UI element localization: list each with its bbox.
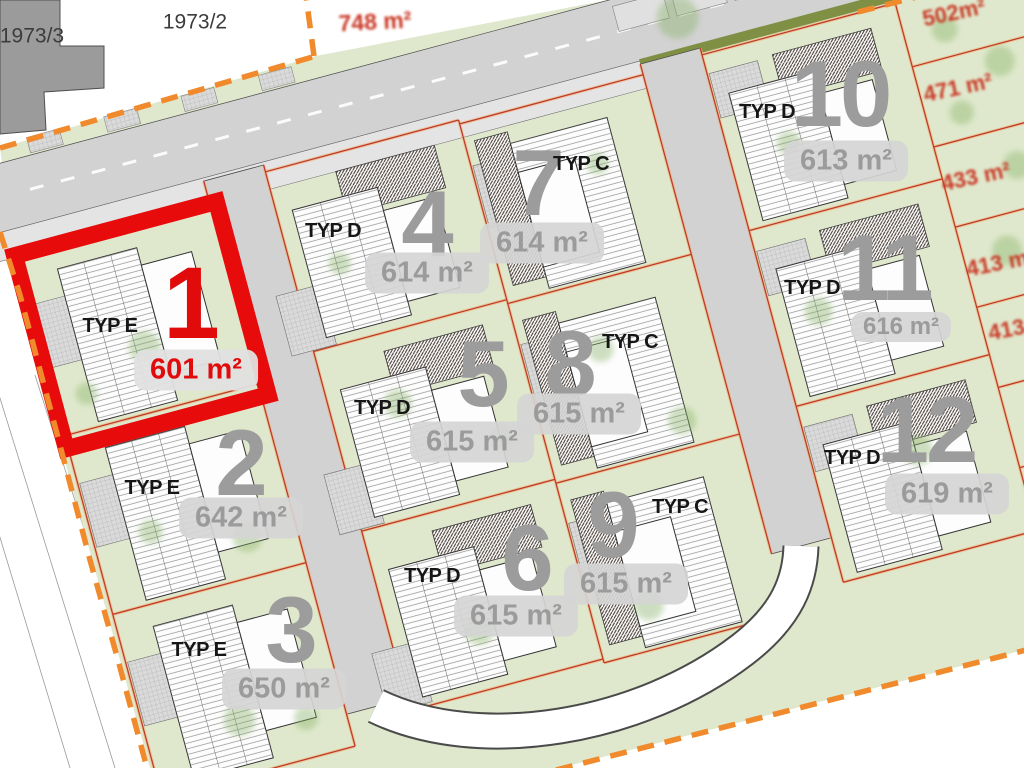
plot-3-area-badge: 650 m² <box>222 669 346 710</box>
area-label-433: 433 m² <box>940 159 1013 195</box>
plot-5-type: TYP D <box>354 398 410 418</box>
plot-4-type: TYP D <box>305 221 361 241</box>
plot-8-type: TYP C <box>602 332 658 352</box>
plot-6-number: 6 <box>501 511 550 605</box>
plot-7-number: 7 <box>512 136 561 230</box>
plot-4-area-badge: 614 m² <box>365 253 489 294</box>
site-plan: 1973/3 1973/2 748 m² 502m² 471 m² 433 m²… <box>0 0 1024 768</box>
annotation-layer: 1973/3 1973/2 748 m² 502m² 471 m² 433 m²… <box>0 0 1024 768</box>
parcel-label-1973-2: 1973/2 <box>163 12 227 33</box>
plot-12-type: TYP D <box>824 448 880 468</box>
plot-11-area-badge: 616 m² <box>851 312 951 342</box>
plot-5-area-badge: 615 m² <box>410 422 534 463</box>
plot-9-area-badge: 615 m² <box>564 564 688 605</box>
plot-9-number: 9 <box>587 478 636 572</box>
plot-8-area-badge: 615 m² <box>517 394 641 435</box>
plot-1-type: TYP E <box>83 316 138 336</box>
area-label-471: 471 m² <box>922 70 995 106</box>
plot-1-area-badge: 601 m² <box>134 350 258 391</box>
plot-1-number: 1 <box>163 252 217 354</box>
area-label-413a: 413 m² <box>965 246 1024 281</box>
plot-10-area-badge: 613 m² <box>784 141 908 182</box>
plot-10-number: 10 <box>791 47 890 141</box>
plot-2-type: TYP E <box>125 478 180 498</box>
area-label-502: 502m² <box>921 0 988 30</box>
plot-6-type: TYP D <box>404 566 460 586</box>
plot-12-number: 12 <box>877 383 976 477</box>
plot-2-area-badge: 642 m² <box>179 498 303 539</box>
plot-5-number: 5 <box>457 327 506 421</box>
plot-12-area-badge: 619 m² <box>885 474 1009 515</box>
area-label-748: 748 m² <box>338 9 412 36</box>
plot-11-number: 11 <box>837 221 930 315</box>
plot-2-number: 2 <box>215 416 264 510</box>
plot-3-type: TYP E <box>172 640 227 660</box>
plot-6-area-badge: 615 m² <box>454 596 578 637</box>
plot-11-type: TYP D <box>784 278 840 298</box>
area-label-413b: 413 m² <box>987 310 1024 345</box>
plot-10-type: TYP D <box>739 102 795 122</box>
plot-7-area-badge: 614 m² <box>480 223 604 264</box>
plot-3-number: 3 <box>265 583 314 677</box>
plot-7-type: TYP C <box>553 154 609 174</box>
parcel-label-1973-3: 1973/3 <box>0 26 64 47</box>
plot-9-type: TYP C <box>652 497 708 517</box>
